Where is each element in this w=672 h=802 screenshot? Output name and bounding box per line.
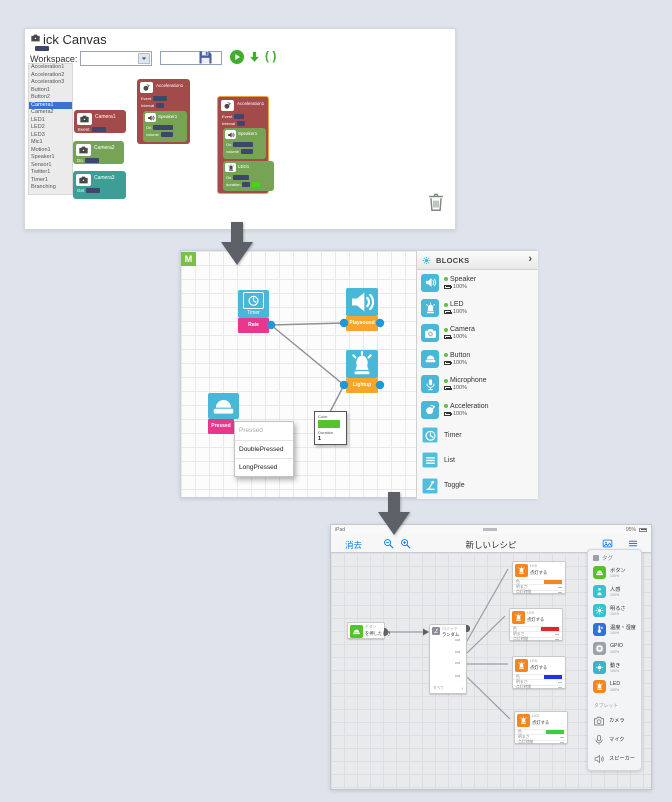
battery-icon <box>444 386 451 390</box>
code-braces-button[interactable]: ( ) <box>265 49 276 63</box>
status-time <box>483 528 497 531</box>
led-icon <box>515 659 528 672</box>
online-status-dot <box>444 328 448 332</box>
tablet-list-item[interactable]: カメラ <box>588 711 641 730</box>
led-action-card[interactable]: LED 点灯する 色 明るさ 点灯時間 <box>512 561 566 594</box>
hamburger-menu-icon[interactable] <box>627 538 639 549</box>
value-chip[interactable] <box>233 142 253 147</box>
row-value <box>555 634 559 635</box>
led-icon <box>512 611 525 624</box>
row-label: 点灯時間 <box>518 740 533 745</box>
online-status-dot <box>444 353 448 357</box>
tag-item-label: 動き <box>610 662 620 669</box>
palette-row-label: Get <box>77 188 84 193</box>
tablet-item-icon <box>593 734 605 746</box>
battery-icon <box>444 285 451 289</box>
workspace-sidebar-list: Acceleration1 Acceleration2 Acceleration… <box>28 63 73 195</box>
row-value <box>558 682 562 683</box>
device-icon <box>421 350 439 368</box>
led-icon <box>225 163 236 172</box>
sidebar-item[interactable]: Motion1 <box>29 147 72 155</box>
tag-panel-header: タグ <box>588 550 641 563</box>
row-label: Interval <box>141 103 154 108</box>
speaker-action-tag[interactable]: Playsound <box>346 316 378 331</box>
row-label: Interval <box>222 121 235 126</box>
sidebar-item[interactable]: Branching <box>29 184 72 192</box>
block-title: LED1 <box>238 164 249 169</box>
tablet-list-item[interactable]: スピーカー <box>588 749 641 768</box>
blocks-icon <box>421 255 432 266</box>
tag-item-battery: 100% <box>610 688 620 692</box>
device-icon <box>421 324 439 342</box>
button-icon <box>208 393 239 419</box>
collapse-chevron[interactable]: › <box>528 253 532 265</box>
device-name: LED <box>450 301 464 308</box>
tag-item-icon <box>593 661 606 674</box>
value-chip[interactable] <box>153 125 173 130</box>
button-trigger-card[interactable]: ボタン を押したとき <box>347 622 385 639</box>
tag-panel-title: タグ <box>602 554 613 562</box>
duration-value: 1 <box>318 436 346 442</box>
sidebar-item[interactable]: Twitter1 <box>29 169 72 177</box>
value-chip[interactable] <box>92 127 106 132</box>
tag-item-battery: 100% <box>610 631 636 635</box>
device-name: Acceleration <box>450 403 489 410</box>
tag-item-battery: 100% <box>610 612 626 616</box>
button-icon <box>350 625 363 638</box>
sidebar-item[interactable]: Acceleration2 <box>29 72 72 80</box>
tag-item-label: LED <box>610 681 620 687</box>
led-color-bar[interactable] <box>541 627 559 631</box>
palette-row-label: Do <box>77 158 83 163</box>
flow-arrow-down-2 <box>376 492 412 536</box>
save-icon[interactable] <box>197 49 214 66</box>
value-chip[interactable] <box>242 182 250 187</box>
value-chip[interactable] <box>153 96 167 101</box>
block-title: Speaker1 <box>158 114 177 119</box>
tag-item-icon <box>593 642 606 655</box>
palette-row-label: Is <box>29 46 33 51</box>
tablet-list-item[interactable]: マイク <box>588 730 641 749</box>
led-properties-box[interactable]: Color Duration 1 <box>314 411 347 445</box>
online-status-dot <box>444 303 448 307</box>
block-title: Speaker1 <box>238 131 257 136</box>
menu-item[interactable]: DoublePressed <box>235 440 293 458</box>
battery-percent: 100% <box>453 334 467 340</box>
battery-percent: 95% <box>626 527 636 533</box>
card-label: 点灯する <box>527 617 544 623</box>
online-status-dot <box>444 404 448 408</box>
battery-row: 100% <box>444 284 476 290</box>
tablet-list: カメラ マイク スピーカー <box>588 711 641 768</box>
led-action-card[interactable]: LED 点灯する 色 明るさ 点灯時間 <box>512 656 566 689</box>
tag-item-icon <box>593 566 606 579</box>
blocks-panel: BLOCKS › Speaker <box>416 251 538 499</box>
tag-item-battery: 100% <box>610 650 623 654</box>
tag-item-label: 温度・湿度 <box>610 624 636 631</box>
battery-icon <box>444 310 451 314</box>
device-name: Toggle <box>444 482 465 489</box>
logic-footer[interactable]: すべて <box>433 686 444 691</box>
speaker-block[interactable]: Speaker <box>346 288 378 316</box>
sidebar-item[interactable]: Button2 <box>29 94 72 102</box>
row-label: On <box>226 142 231 147</box>
card-caption: LED <box>527 611 534 615</box>
battery-percent: 100% <box>453 411 467 417</box>
led-color-bar[interactable] <box>544 675 562 679</box>
led-action-tag[interactable]: Lightup <box>346 378 378 393</box>
dropdown-arrow-icon[interactable] <box>138 53 150 64</box>
device-list-item[interactable]: Camera 100% <box>417 321 538 346</box>
block-slot <box>77 95 119 101</box>
led-action-card[interactable]: LED 点灯する 色 明るさ 点灯時間 <box>514 711 568 744</box>
color-swatch[interactable] <box>252 182 260 187</box>
card-label: 点灯する <box>530 665 547 671</box>
row-value <box>558 687 562 688</box>
led-color-bar[interactable] <box>544 580 562 584</box>
led-block[interactable]: LED <box>346 350 378 378</box>
battery-icon <box>639 528 647 532</box>
row-label: Event <box>222 114 232 119</box>
port-label: out <box>455 661 460 665</box>
battery-percent: 100% <box>453 360 467 366</box>
value-chip[interactable] <box>85 158 99 163</box>
battery-icon <box>444 335 451 339</box>
online-status-dot <box>444 379 448 383</box>
block-caption: Timer <box>238 310 269 316</box>
row-label: 点灯時間 <box>513 637 528 642</box>
device-name: List <box>444 457 455 464</box>
tablet-item-icon <box>593 753 605 765</box>
flow-arrow-down-1 <box>219 222 255 266</box>
sidebar-item[interactable]: LED3 <box>29 132 72 140</box>
card-caption: LED <box>532 714 539 718</box>
footer-chevron: › <box>461 686 463 692</box>
output-connector[interactable] <box>384 628 388 636</box>
battery-icon <box>444 412 451 416</box>
blocks-panel-list: Speaker 100% <box>417 270 538 499</box>
tag-item-label: GPIO <box>610 643 623 649</box>
palette-block-title: Camera4 <box>46 33 67 39</box>
row-label: 色 <box>516 580 520 585</box>
tag-list-item[interactable]: LED 100% <box>588 677 641 696</box>
button-block[interactable]: Button <box>208 393 239 419</box>
acceleration-icon <box>140 82 153 93</box>
timer-icon <box>247 294 260 307</box>
battery-percent: 100% <box>453 385 467 391</box>
button-event-menu: Pressed DoublePressed LongPressed <box>234 421 294 477</box>
speaker-icon <box>225 130 236 139</box>
tablet-item-icon <box>593 715 605 727</box>
battery-percent: 100% <box>453 309 467 315</box>
online-status-dot <box>444 277 448 281</box>
camera-icon <box>76 174 91 186</box>
tag-item-icon <box>593 623 606 636</box>
sidebar-item[interactable]: Camera2 <box>29 109 72 117</box>
palette-block[interactable]: Camera3 Get <box>73 171 126 199</box>
device-list-item[interactable]: LED 100% <box>417 295 538 320</box>
led-block[interactable]: LED1 On duration <box>223 161 274 191</box>
tag-item-battery: 100% <box>610 669 620 673</box>
device-icon <box>421 299 439 317</box>
sidebar-item[interactable]: Speaker1 <box>29 154 72 162</box>
tag-item-label: ボタン <box>610 567 626 574</box>
device-icon <box>421 426 439 444</box>
sidebar-item[interactable]: LED2 <box>29 124 72 132</box>
device-list-item[interactable]: Speaker 100% <box>417 270 538 295</box>
row-label: Event <box>141 96 151 101</box>
battery-row: 100% <box>444 334 475 340</box>
sidebar-item[interactable]: LED1 <box>29 117 72 125</box>
logic-icon <box>432 627 440 635</box>
device-name: Microphone <box>450 377 487 384</box>
sidebar-item[interactable]: Sensor1 <box>29 162 72 170</box>
speaker-block[interactable]: Speaker1 On volume <box>223 128 266 159</box>
camera-icon <box>28 32 43 44</box>
tag-list-item[interactable]: 動き 100% <box>588 658 641 677</box>
tag-item-battery: 100% <box>610 574 626 578</box>
value-chip[interactable] <box>86 188 100 193</box>
output-connector[interactable] <box>466 625 470 632</box>
run-icon[interactable] <box>229 49 245 65</box>
row-label: 色 <box>516 675 520 680</box>
device-list-item[interactable]: Acceleration 100% <box>417 397 538 422</box>
sidebar-item[interactable]: Button1 <box>29 87 72 95</box>
value-chip[interactable] <box>161 132 173 137</box>
device-list-item[interactable]: List <box>417 448 538 473</box>
row-label: volume <box>146 132 159 137</box>
row-label: On <box>226 175 231 180</box>
battery-percent: 100% <box>453 284 467 290</box>
block-title: Acceleration1 <box>237 101 264 106</box>
palette-block-title: Camera2 <box>94 145 115 151</box>
sidebar-item[interactable]: Acceleration3 <box>29 79 72 87</box>
device-name: Button <box>450 352 470 359</box>
row-label: 色 <box>518 730 522 735</box>
acceleration-block-selected[interactable]: Acceleration1 Event Interval Speaker1 On… <box>217 96 269 194</box>
timer-event-tag[interactable]: Rate <box>238 318 269 333</box>
row-value <box>560 742 564 743</box>
trash-icon[interactable] <box>425 187 447 217</box>
speaker-block[interactable]: Speaker1 On volume <box>143 111 187 142</box>
row-label: 点灯時間 <box>516 685 531 690</box>
blocks-panel-header: BLOCKS › <box>417 251 538 270</box>
tag-icon <box>593 555 599 561</box>
tag-list: ボタン 100% 人感 100% <box>588 563 641 696</box>
blocks-panel-title: BLOCKS <box>436 256 469 265</box>
battery-row: 100% <box>444 309 467 315</box>
sidebar-item[interactable]: Timer1 <box>29 177 72 185</box>
led-icon <box>515 564 528 577</box>
device-list-item[interactable]: Microphone 100% <box>417 372 538 397</box>
device-icon <box>421 375 439 393</box>
sidebar-item[interactable]: Mic1 <box>29 139 72 147</box>
m-logo: M <box>181 252 196 266</box>
row-label: On <box>146 125 151 130</box>
battery-icon <box>444 361 451 365</box>
tag-list-item[interactable]: 温度・湿度 100% <box>588 620 641 639</box>
device-name: Camera <box>450 326 475 333</box>
led-action-card[interactable]: LED 点灯する 色 明るさ 点灯時間 <box>509 608 563 641</box>
tag-list-item[interactable]: GPIO 100% <box>588 639 641 658</box>
tablet-section-label: タブレット <box>588 696 641 711</box>
color-swatch[interactable] <box>318 420 340 428</box>
battery-row: 100% <box>444 411 489 417</box>
row-label: volume <box>226 149 239 154</box>
tablet-item-label: スピーカー <box>609 755 635 762</box>
tag-list-item[interactable]: 人感 100% <box>588 582 641 601</box>
photo-icon[interactable] <box>601 538 614 549</box>
block-title: Acceleration1 <box>156 83 183 88</box>
value-chip[interactable] <box>156 103 164 108</box>
composite-screenshot: Brick Canvas Workspace: ( ) Acceleration… <box>0 0 672 802</box>
device-name: Speaker <box>450 276 476 283</box>
speaker-icon <box>346 288 378 316</box>
tag-item-battery: 100% <box>610 593 620 597</box>
row-value <box>558 592 562 593</box>
row-label: duration <box>226 182 240 187</box>
device-label: iPad <box>335 527 345 533</box>
duration-label: Duration <box>318 430 346 435</box>
row-value <box>558 587 562 588</box>
camera-icon <box>77 113 92 125</box>
value-chip[interactable] <box>233 175 249 180</box>
palette-block-title: Camera1 <box>95 114 116 120</box>
value-chip[interactable] <box>241 149 253 154</box>
menu-item[interactable]: LongPressed <box>235 458 293 476</box>
port-label: out <box>455 650 460 654</box>
download-icon[interactable] <box>247 50 262 65</box>
card-caption: ボタン <box>365 625 376 630</box>
device-icon <box>421 274 439 292</box>
battery-row: 100% <box>444 360 470 366</box>
device-list-item[interactable]: Toggle <box>417 473 538 498</box>
palette-row-label: Event <box>78 127 90 132</box>
card-caption: LED <box>530 659 537 663</box>
card-caption: LED <box>530 564 537 568</box>
tag-item-label: 人感 <box>610 586 620 593</box>
acceleration-block[interactable]: Acceleration1 Event Interval Speaker1 On… <box>137 79 190 144</box>
device-list-item[interactable]: Button 100% <box>417 346 538 371</box>
tag-list-item[interactable]: ボタン 100% <box>588 563 641 582</box>
card-label: 点灯する <box>530 570 547 576</box>
tag-item-icon <box>593 680 606 693</box>
palette-block-title: Camera3 <box>94 175 115 181</box>
tag-item-icon <box>593 604 606 617</box>
sidebar-item[interactable]: Camera1 <box>29 102 72 110</box>
brick-canvas-window: Brick Canvas Workspace: ( ) Acceleration… <box>24 28 456 230</box>
logic-random-card[interactable]: ロジック ランダム outoutoutout すべて › <box>429 624 467 694</box>
value-chip[interactable] <box>234 114 244 119</box>
block-canvas-screen: M Timer Rate Speaker Playsound LED Light… <box>180 250 537 498</box>
row-value <box>560 737 564 738</box>
ipad-recipe-screen: iPad 95% 消去 新しいレシピ ボタン を押したとき <box>330 524 652 790</box>
palette-block[interactable]: Camera1 Event <box>74 110 126 133</box>
button-event-tag[interactable]: Pressed <box>208 419 234 434</box>
tag-item-label: 明るさ <box>610 605 626 612</box>
battery-row: 100% <box>444 385 487 391</box>
value-chip[interactable] <box>237 121 245 126</box>
palette-block[interactable]: Camera2 Do <box>73 141 124 164</box>
workspace-select[interactable] <box>80 51 152 66</box>
row-label: 色 <box>513 627 517 632</box>
row-value <box>555 639 559 640</box>
camera-icon <box>76 144 91 156</box>
acceleration-icon <box>221 100 234 111</box>
led-icon <box>517 714 530 727</box>
value-chip[interactable] <box>35 46 49 51</box>
row-label: 点灯時間 <box>516 590 531 595</box>
device-list-item[interactable]: Timer <box>417 422 538 447</box>
tag-item-icon <box>593 585 606 598</box>
led-color-bar[interactable] <box>546 730 564 734</box>
tablet-item-label: カメラ <box>609 717 625 724</box>
device-name: Timer <box>444 432 462 439</box>
tag-list-item[interactable]: 明るさ 100% <box>588 601 641 620</box>
device-icon <box>421 477 439 495</box>
menu-item[interactable]: Pressed <box>235 422 293 440</box>
speaker-icon <box>145 113 156 122</box>
sidebar-item[interactable]: Acceleration1 <box>29 64 72 72</box>
timer-block[interactable]: Timer <box>238 290 269 318</box>
card-label: 点灯する <box>532 720 549 726</box>
port-label: out <box>455 674 460 678</box>
device-icon <box>421 401 439 419</box>
tag-palette-panel: タグ ボタン 100% 人感 <box>587 549 642 771</box>
color-label: Color <box>318 414 346 419</box>
device-icon <box>421 451 439 469</box>
tablet-item-label: マイク <box>609 736 624 743</box>
led-icon <box>346 350 378 378</box>
port-label: out <box>455 638 460 642</box>
